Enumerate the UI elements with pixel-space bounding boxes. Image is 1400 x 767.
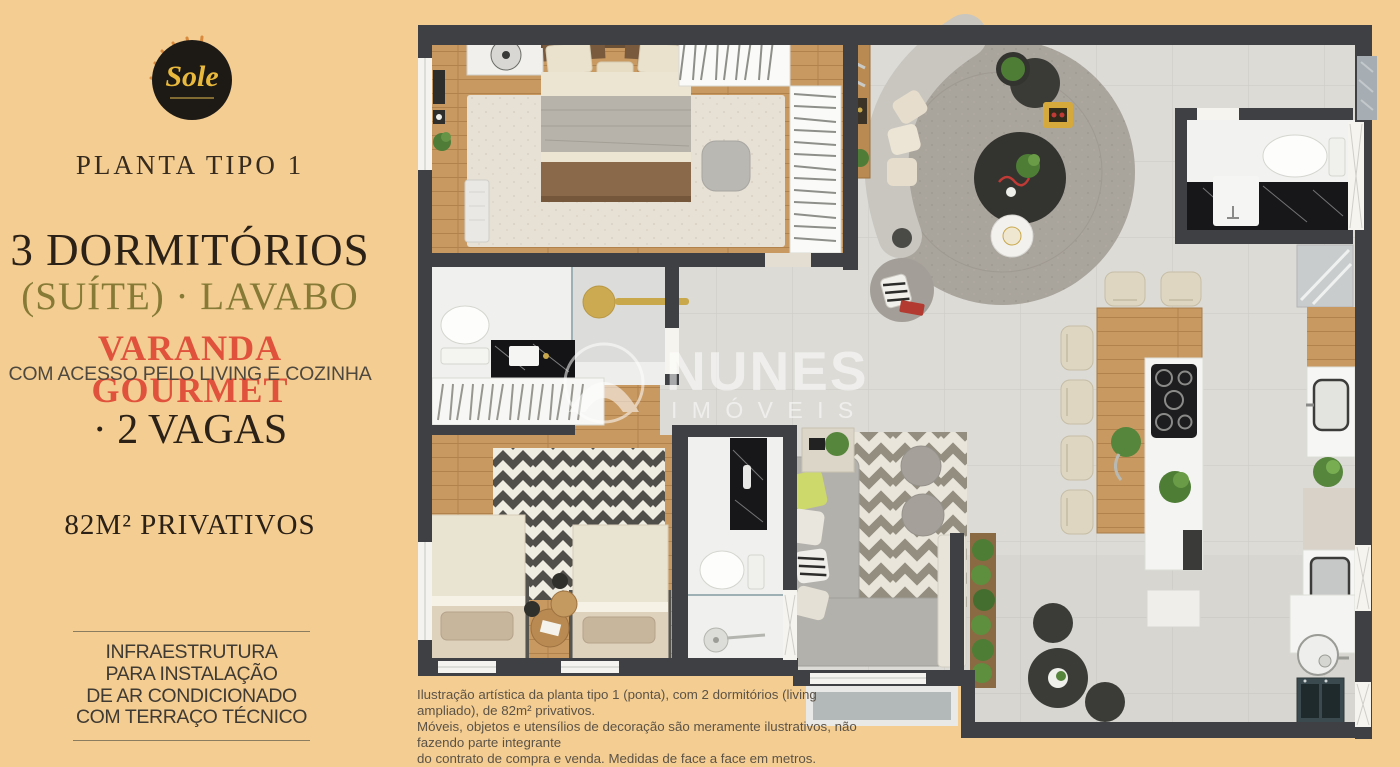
infra-line: DE AR CONDICIONADO [73, 686, 310, 708]
ottoman [702, 141, 750, 191]
wood-counter [1307, 307, 1355, 367]
plant-icon [825, 432, 849, 456]
floor-plan: NUNES I M Ó V E I S [413, 10, 1385, 750]
bench [1147, 590, 1200, 627]
parking-spots: · 2 VAGAS [0, 406, 380, 454]
plant-icon [1001, 57, 1025, 81]
suite-door-opening [765, 253, 811, 267]
disclaimer-line: Ilustração artística da planta tipo 1 (p… [417, 687, 877, 719]
plant-icon [1111, 427, 1141, 457]
lavabo-door [1197, 108, 1239, 120]
sink [509, 346, 539, 366]
logo-text: Sole [165, 62, 218, 92]
gold-mirror [583, 286, 615, 318]
sole-logo: Sole [152, 40, 232, 120]
pouf [901, 446, 941, 486]
toilet [1263, 135, 1327, 177]
infra-line: COM TERRAÇO TÉCNICO [73, 707, 310, 729]
round-table [1033, 603, 1073, 643]
disclaimer-line: do contrato de compra e venda. Medidas d… [417, 751, 877, 767]
plant-icon [1313, 457, 1343, 487]
zebra-pillow [794, 548, 830, 584]
watermark-sub: I M Ó V E I S [671, 397, 857, 423]
disclaimer-line: Móveis, objetos e utensílios de decoraçã… [417, 719, 877, 751]
marble-counter [1187, 182, 1355, 230]
infra-line: INFRAESTRUTURA [73, 642, 310, 664]
toilet [441, 306, 489, 344]
subheadline: (SUÍTE) · LAVABO [0, 274, 380, 319]
feature-detail: COM ACESSO PELO LIVING E COZINHA [0, 363, 380, 386]
cooktop [1151, 364, 1197, 438]
toilet [700, 551, 744, 589]
logo-circle: Sole [152, 40, 232, 120]
logo-subline [170, 97, 214, 99]
bench [465, 180, 489, 242]
plan-type-label: PLANTA TIPO 1 [0, 150, 380, 181]
headline: 3 DORMITÓRIOS [0, 224, 380, 276]
infra-line: PARA INSTALAÇÃO [73, 664, 310, 686]
coffee-table [974, 132, 1066, 224]
laundry-tub [1298, 635, 1338, 675]
sink [1314, 380, 1348, 430]
extended-living [787, 428, 967, 667]
watermark-brand: NUNES [666, 340, 869, 402]
single-bed-right [569, 525, 671, 660]
private-area: 82M² PRIVATIVOS [0, 509, 380, 542]
gold-faucet [543, 353, 549, 359]
infrastructure-note: INFRAESTRUTURA PARA INSTALAÇÃO DE AR CON… [73, 631, 310, 741]
round-table [1085, 682, 1125, 722]
wall-tv [433, 70, 445, 104]
single-bed-left [426, 515, 529, 660]
pouf [902, 494, 944, 536]
disclaimer: Ilustração artística da planta tipo 1 (p… [417, 687, 877, 767]
marketing-panel: Sole PLANTA TIPO 1 3 DORMITÓRIOS (SUÍTE)… [0, 0, 415, 765]
lavabo [1187, 120, 1355, 230]
counter-beige [1303, 488, 1355, 550]
